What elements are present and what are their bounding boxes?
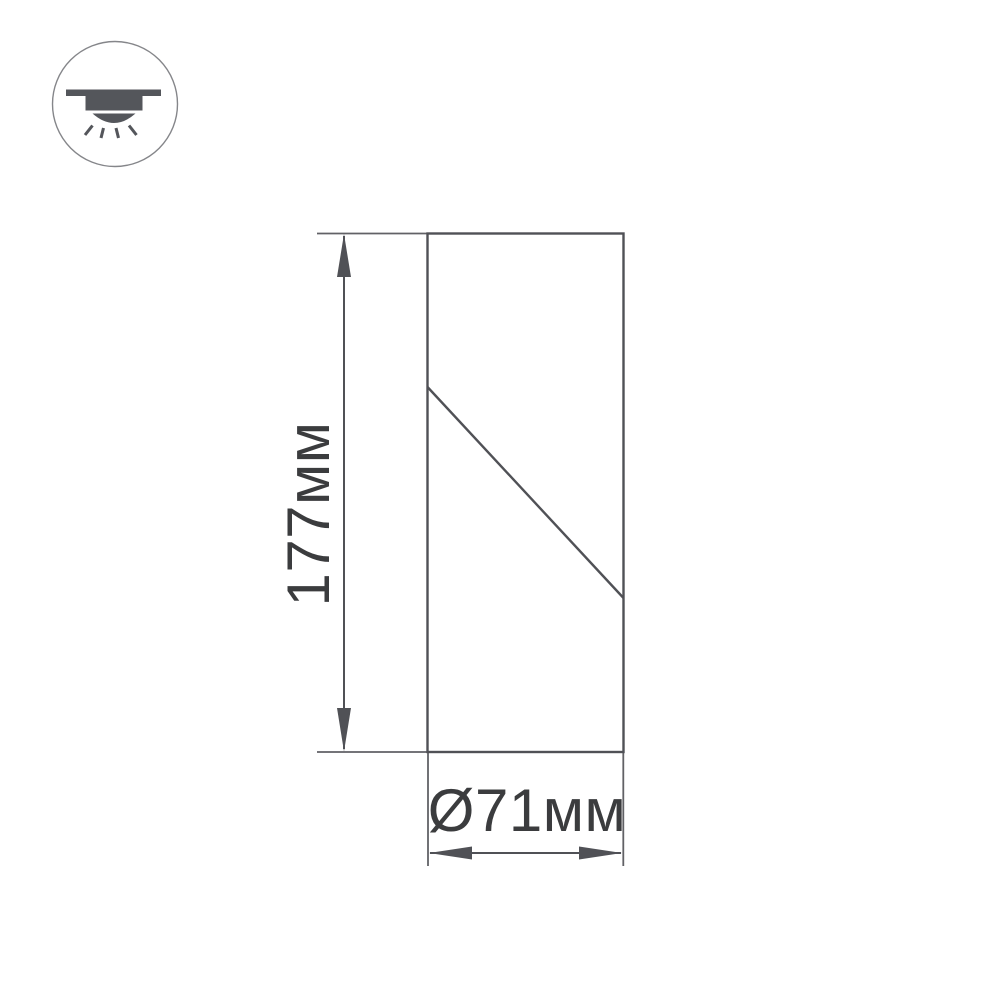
technical-drawing	[0, 0, 1000, 1000]
light-ray-icon	[85, 126, 93, 136]
arrowhead-right	[579, 847, 622, 860]
light-ray-icon	[129, 126, 137, 136]
fixture-body	[86, 96, 143, 111]
dimension-drawing-canvas: 177мм Ø71мм	[0, 0, 1000, 1000]
arrowhead-up	[337, 234, 351, 277]
arrowhead-down	[337, 708, 351, 752]
light-ray-icon	[116, 128, 119, 138]
arrowhead-left	[429, 847, 472, 860]
ceiling-line	[66, 90, 161, 97]
diameter-dimension-label: Ø71мм	[428, 781, 626, 841]
light-dome	[93, 114, 136, 124]
light-ray-icon	[101, 128, 104, 138]
fixture-diagonal-edge	[428, 387, 624, 598]
height-dimension-label: 177мм	[279, 421, 339, 606]
ceiling-light-icon	[53, 42, 178, 167]
fixture-profile	[428, 234, 624, 753]
